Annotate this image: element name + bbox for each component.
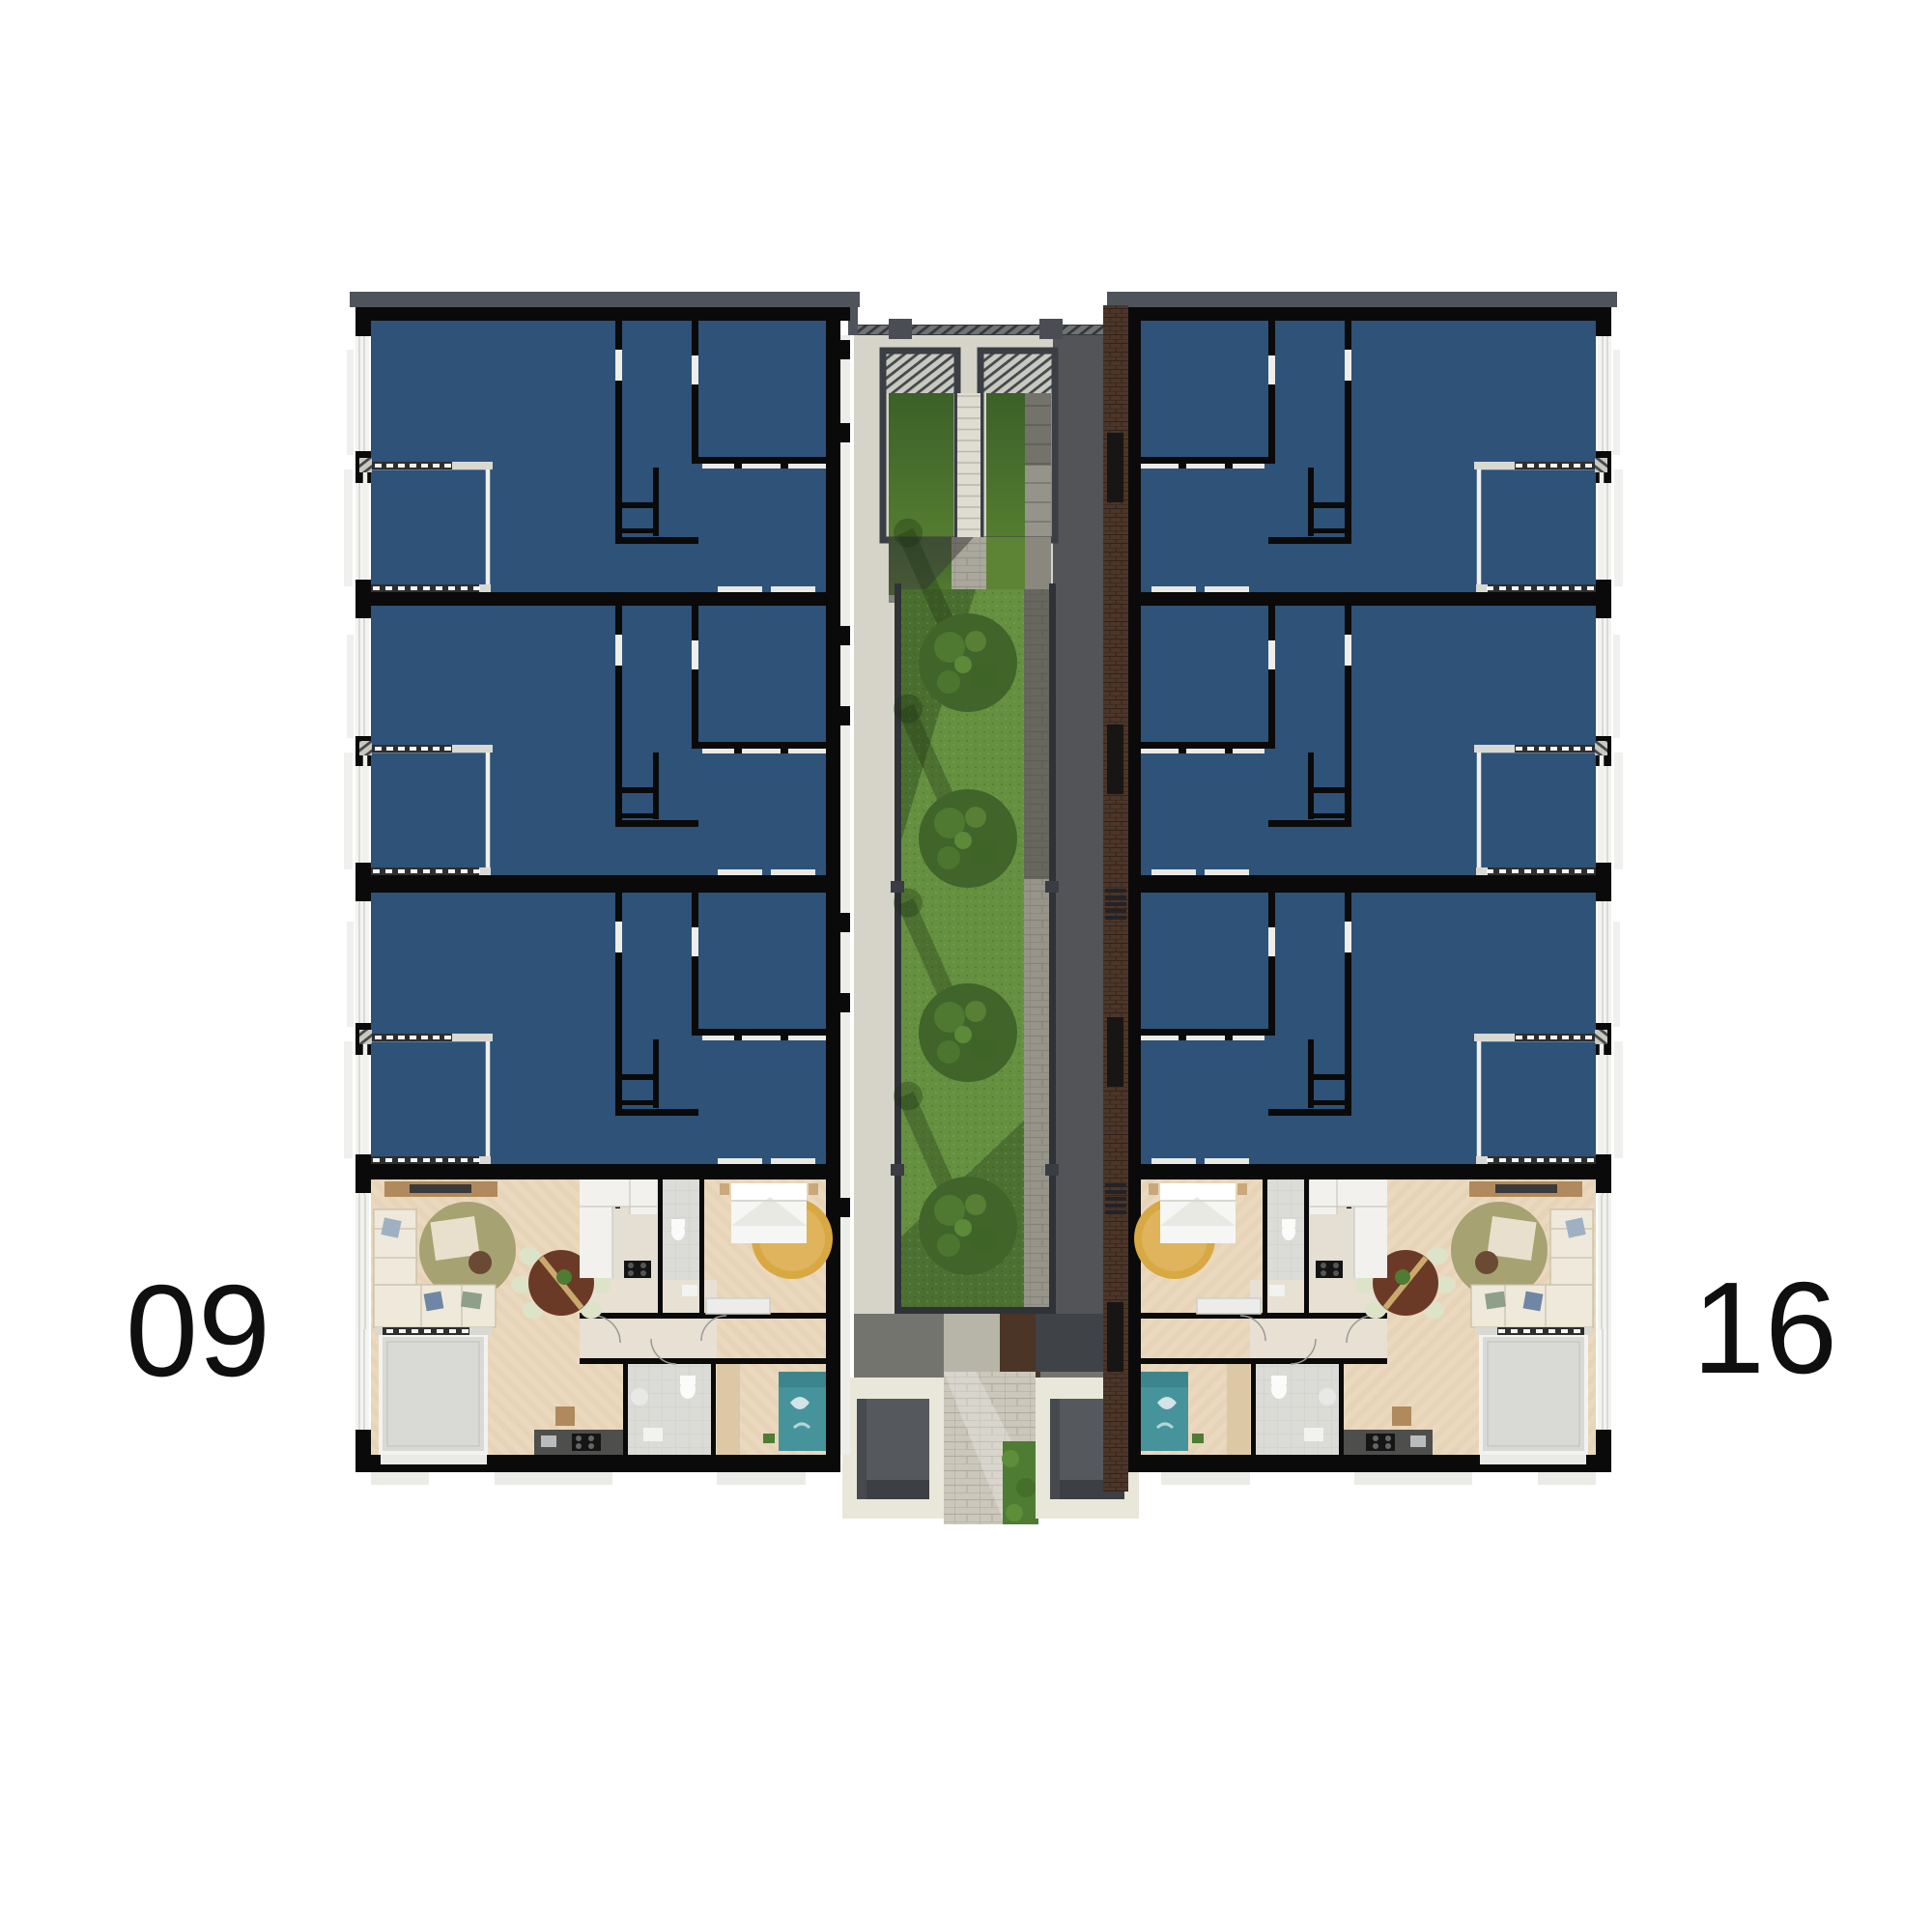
- svg-text:09: 09: [126, 1258, 270, 1404]
- svg-text:16: 16: [1692, 1255, 1837, 1401]
